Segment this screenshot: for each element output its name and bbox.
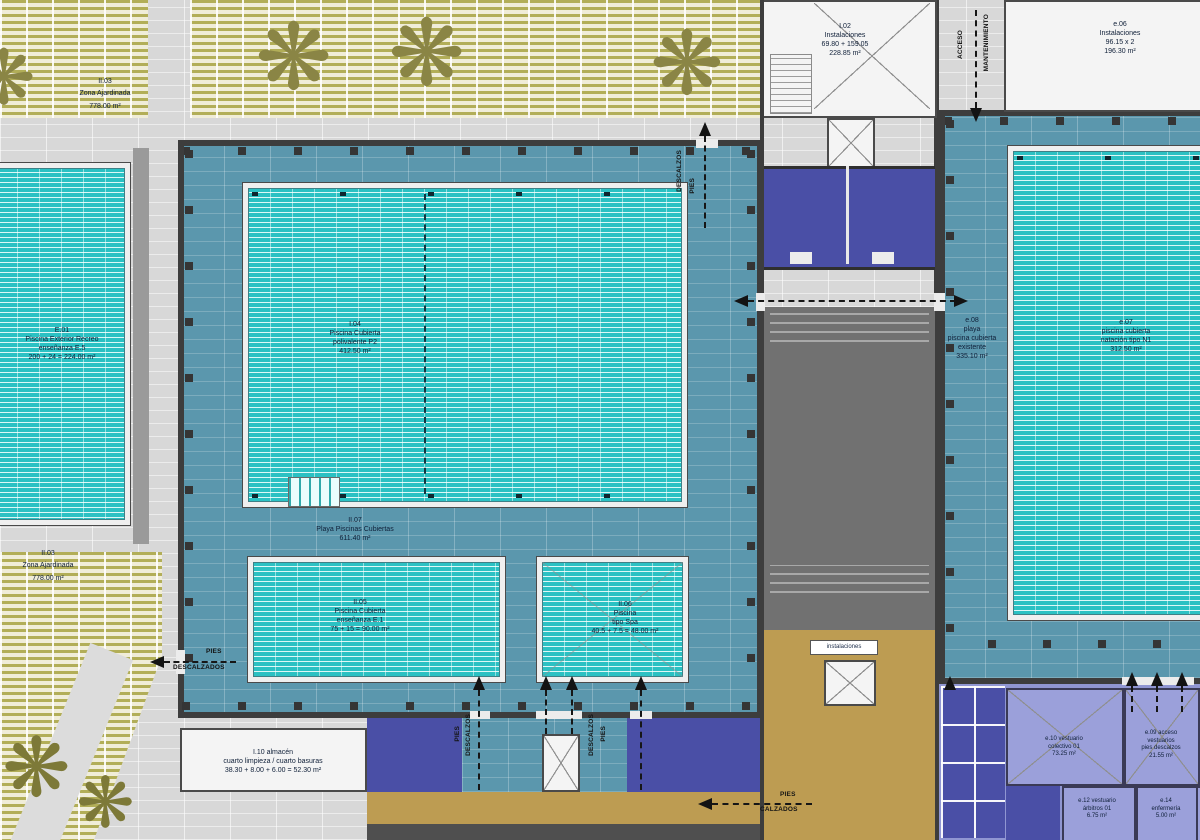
label-garden-bottom: II.03Zona Ajardinada778.00 m² xyxy=(0,548,96,585)
flow-text-descalzos: DESCALZOS xyxy=(465,714,472,756)
door-leaf xyxy=(542,734,580,792)
label-inst-right: e.06Instalaciones96.15 x 2196.30 m² xyxy=(1058,20,1182,56)
wall xyxy=(939,110,945,678)
door-opening xyxy=(696,139,718,148)
boundary-band xyxy=(367,824,763,840)
arrow-left-icon xyxy=(734,295,748,307)
stairs xyxy=(770,54,812,114)
stairs xyxy=(770,312,929,342)
arrow-up-icon xyxy=(473,676,485,690)
elevator xyxy=(824,660,876,706)
door-opening xyxy=(536,711,582,719)
label-outdoor-pool: E.01Piscina Exterior Recreoenseñanza E.5… xyxy=(0,326,124,362)
label-enfermeria: e.14enfermería5.00 m² xyxy=(1138,798,1194,821)
arrow-up-icon xyxy=(699,122,711,136)
arrow-tail xyxy=(975,10,977,108)
wall xyxy=(178,140,763,146)
door-opening xyxy=(790,252,812,264)
column xyxy=(1043,640,1051,648)
column-row xyxy=(747,150,755,710)
lane-line xyxy=(424,194,426,494)
service-block xyxy=(627,718,763,792)
door-opening xyxy=(756,293,765,311)
tree-icon: ❋ xyxy=(255,12,332,104)
door-opening xyxy=(470,711,490,719)
tree-icon: ❋ xyxy=(650,20,724,108)
arrow-up-icon xyxy=(944,676,956,690)
pool-steps xyxy=(288,477,340,507)
wall xyxy=(178,140,184,718)
label-right-playa: e.08playapiscina cubiertaexistente335.10… xyxy=(938,316,1006,361)
label-teaching-pool: II.05Piscina Cubiertaenseñanza E.175 + 1… xyxy=(310,598,410,634)
flow-text-calzados: CALZADOS xyxy=(760,806,798,813)
tree-icon: ❋ xyxy=(0,40,36,116)
arrow-down-icon xyxy=(970,108,982,122)
flow-text-descalzos: DESCALZOS xyxy=(676,150,683,192)
label-right-pool: e.07piscina cubiertanatación tipo N1312.… xyxy=(1072,318,1180,354)
room-divider xyxy=(846,166,849,264)
label-storeroom: I.10 almacéncuarto limpieza / cuarto bas… xyxy=(184,748,362,775)
label-vestuario-arbitros1: e.12 vestuarioárbitros 016.75 m² xyxy=(1062,798,1132,821)
label-acceso-vestuarios: e.09 accesovestuariospies descalzos21.55… xyxy=(1126,730,1196,760)
fixture-block xyxy=(1006,786,1060,840)
arrow-up-icon xyxy=(635,676,647,690)
floor-plan-canvas: ❋ ❋ ❋ ❋ ❋ ❋ II.03Zona Ajardinada778.00 m… xyxy=(0,0,1200,840)
label-inst-center: I.02Instalaciones69.80 + 159.05228.85 m² xyxy=(795,22,895,58)
label-playa-cubierta: II.07Playa Piscinas Cubiertas611.40 m² xyxy=(295,516,415,543)
arrow-tail xyxy=(478,690,480,790)
lane-marks xyxy=(1017,156,1200,160)
label-vestuario-colectivo: e.10 vestuariocolectivo 0173.25 m² xyxy=(1008,736,1120,759)
tree-icon: ❋ xyxy=(388,8,465,100)
arrow-tail xyxy=(1156,686,1158,712)
label-main-pool: I.04Piscina Cubiertapolivalente P2412.50… xyxy=(305,320,405,356)
site-wall xyxy=(133,148,149,544)
flow-text-acceso: ACCESO xyxy=(957,30,964,59)
flow-text-pies: PIES xyxy=(780,791,796,798)
label-vestuario-arbitros2: e.13 vestuarioárbitros 026.75 m² xyxy=(1196,798,1200,821)
flow-text-mantenimiento: MANTENIMIENTO xyxy=(983,14,990,71)
label-spa-pool: II.06Piscinatipo Spa40.5 + 7.5 = 48.00 m… xyxy=(575,600,675,636)
door-opening xyxy=(872,252,894,264)
arrow-tail xyxy=(164,661,236,663)
door-opening xyxy=(934,293,945,311)
arrow-tail xyxy=(748,300,956,302)
stairs xyxy=(770,565,929,593)
label-instalaciones-tag: instalaciones xyxy=(810,640,878,655)
service-block xyxy=(367,718,462,792)
column xyxy=(1098,640,1106,648)
flow-text-pies: PIES xyxy=(206,648,222,655)
column-row xyxy=(182,702,761,710)
lane-marks xyxy=(252,192,676,196)
column xyxy=(988,640,996,648)
flow-text-pies: PIES xyxy=(600,726,607,742)
flow-text-pies: PIES xyxy=(454,726,461,742)
arrow-up-icon xyxy=(1176,672,1188,686)
wc-cells xyxy=(941,686,1005,838)
column-row xyxy=(182,147,761,155)
flow-text-descalzos: DESCALZOS xyxy=(588,714,595,756)
arrow-tail xyxy=(571,690,573,734)
arrow-tail xyxy=(704,136,706,228)
tree-icon: ❋ xyxy=(76,768,135,838)
arrow-tail xyxy=(1131,686,1133,712)
arrow-left-icon xyxy=(150,656,164,668)
column-row xyxy=(185,150,193,710)
arrow-left-icon xyxy=(698,798,712,810)
arrow-up-icon xyxy=(1151,672,1163,686)
column-row xyxy=(944,117,1200,125)
flow-text-pies: PIES xyxy=(689,178,696,194)
arrow-tail xyxy=(640,690,642,790)
arrow-tail xyxy=(712,803,812,805)
tree-icon: ❋ xyxy=(2,728,71,810)
arrow-tail xyxy=(1181,686,1183,712)
column-row xyxy=(946,120,954,676)
arrow-up-icon xyxy=(540,676,552,690)
column xyxy=(1153,640,1161,648)
arrow-up-icon xyxy=(566,676,578,690)
label-garden-top: II.03Zona Ajardinada778.00 m² xyxy=(45,76,165,113)
elevator xyxy=(827,118,875,168)
arrow-tail xyxy=(545,690,547,734)
right-pool-water xyxy=(1008,146,1200,620)
arrow-up-icon xyxy=(1126,672,1138,686)
flow-text-descalzados: DESCALZADOS xyxy=(173,664,225,671)
arrow-right-icon xyxy=(954,295,968,307)
